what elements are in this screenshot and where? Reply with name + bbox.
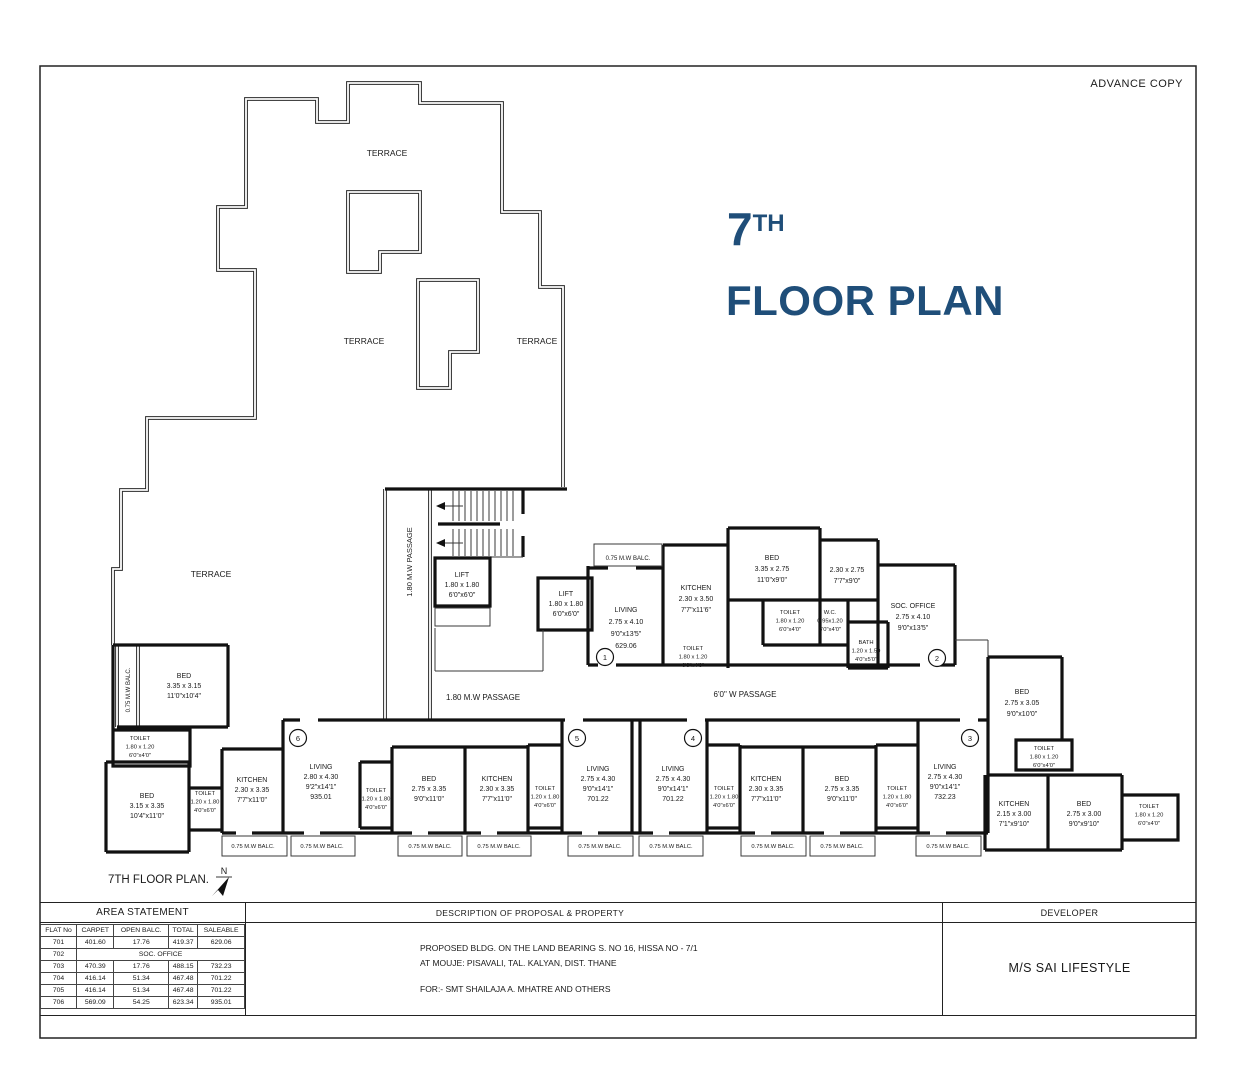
room-label-bed-705: BED xyxy=(422,776,436,783)
room-label-living-701: 629.06 xyxy=(615,643,637,650)
area-table-cell: 17.76 xyxy=(114,937,169,949)
area-table-cell: 467.48 xyxy=(169,973,198,985)
room-label-wc: 0.95x1.20 xyxy=(817,619,842,625)
room-label-toilet: 4'0"x6'0" xyxy=(194,808,216,814)
room-label-living-705: 2.75 x 4.30 xyxy=(581,776,616,783)
floor-plan-sheet: { "sheet": { "advance_copy": "ADVANCE CO… xyxy=(0,0,1234,1079)
sheet-border xyxy=(40,66,1196,1038)
room-label-toilet: 1.80 x 1.20 xyxy=(679,655,708,661)
area-table-cell: 705 xyxy=(41,985,77,997)
area-table-cell: 51.34 xyxy=(114,985,169,997)
room-label-bed-701: BED xyxy=(765,555,779,562)
area-statement-cell: FLAT NoCARPETOPEN BALC.TOTALSALEABLE 701… xyxy=(40,923,246,1016)
room-label-kitchen-704: KITCHEN xyxy=(751,776,782,783)
area-table-row: 702SOC. OFFICE xyxy=(41,949,245,961)
lift-label: LIFT xyxy=(559,591,574,598)
room-label-living-703: 9'0"x14'1" xyxy=(930,784,961,791)
unit-number: 4 xyxy=(691,734,695,743)
room-label-bed-706: 3.35 x 3.15 xyxy=(167,683,202,690)
room-label-kitchen-703: 7'1"x9'10" xyxy=(999,821,1030,828)
description-line: AT MOUJE: PISAVALI, TAL. KALYAN, DIST. T… xyxy=(420,956,942,971)
title-block-body: FLAT NoCARPETOPEN BALC.TOTALSALEABLE 701… xyxy=(40,923,1196,1016)
area-table-cell: 470.39 xyxy=(77,961,114,973)
stair-arrow-icon xyxy=(436,539,445,547)
room-label-kitchen-701: 2.30 x 3.50 xyxy=(679,596,714,603)
room-label-bed-703: BED xyxy=(1015,689,1029,696)
balcony-label: 0.75 M.W BALC. xyxy=(477,844,521,850)
room-label-soc-office: 2.75 x 4.10 xyxy=(896,614,931,621)
area-table-cell: 419.37 xyxy=(169,937,198,949)
room-label-wc: 3'0"x4'0" xyxy=(819,627,841,633)
flat-block-701-702 xyxy=(588,528,988,668)
balcony-label: 0.75 M.W BALC. xyxy=(820,844,864,850)
room-label-toilet: TOILET xyxy=(683,646,704,652)
room-label-kitchen-704: 7'7"x11'0" xyxy=(751,796,782,803)
room-label-toilet: 1.20 x 1.80 xyxy=(883,795,912,801)
room-label-living-706: 935.01 xyxy=(310,794,332,801)
room-label-bed-703: 2.75 x 3.05 xyxy=(1005,700,1040,707)
area-table-cell: 702 xyxy=(41,949,77,961)
area-table-cell: 54.25 xyxy=(114,997,169,1009)
balcony-label: 0.75 M.W BALC. xyxy=(578,844,622,850)
room-label-living-706: LIVING xyxy=(310,764,333,771)
area-table-cell: 416.14 xyxy=(77,985,114,997)
room-label-living-703: 732.23 xyxy=(934,794,956,801)
balcony-label: 0.75 M.W BALC. xyxy=(408,844,452,850)
lift-label: 6'0"x6'0" xyxy=(449,592,476,599)
terrace-label: TERRACE xyxy=(517,336,558,346)
room-label-bed-703b: 9'0"x9'10" xyxy=(1069,821,1100,828)
north-arrow-icon xyxy=(212,877,232,896)
room-label-living-706: 9'2"x14'1" xyxy=(306,784,337,791)
balcony-label: 0.75 M.W BALC. xyxy=(751,844,795,850)
room-label-bath: BATH xyxy=(858,640,873,646)
area-table-cell: 623.34 xyxy=(169,997,198,1009)
unit-number: 3 xyxy=(968,734,972,743)
room-label-toilet: 4'0"x6'0" xyxy=(886,803,908,809)
room-label-living-704: 9'0"x14'1" xyxy=(658,786,689,793)
room-label-toilet: 1.20 x 1.80 xyxy=(191,800,220,806)
room-label-kitchen-703: 2.15 x 3.00 xyxy=(997,811,1032,818)
stair-arrow-icon xyxy=(436,502,445,510)
balcony-label: 0.75 M.W BALC. xyxy=(300,844,344,850)
page-title: 7TH xyxy=(727,206,785,252)
room-label-kitchen-706: KITCHEN xyxy=(237,777,268,784)
area-statement-title: AREA STATEMENT xyxy=(40,903,246,922)
room-label-toilet: 4'0"x6'0" xyxy=(534,803,556,809)
room-label-toilet: 6'0"x4'0" xyxy=(129,753,151,759)
room-label-kitchen-701: 7'7"x11'6" xyxy=(681,607,712,614)
room-label-bed-705: 9'0"x11'0" xyxy=(414,796,445,803)
room-label-toilet: 4'0"x6'0" xyxy=(713,803,735,809)
room-label-bath: 4'0"x5'0" xyxy=(855,657,877,663)
area-col-header: CARPET xyxy=(77,925,114,937)
room-label-kitchen-705: 2.30 x 3.35 xyxy=(480,786,515,793)
room-label-kitchen-703: KITCHEN xyxy=(999,801,1030,808)
room-label-room-702: 7'7"x9'0" xyxy=(834,578,861,585)
room-label-kitchen-706: 2.30 x 3.35 xyxy=(235,787,270,794)
area-table-cell: 732.23 xyxy=(198,961,245,973)
room-label-living-703: 2.75 x 4.30 xyxy=(928,774,963,781)
area-table-cell: 401.60 xyxy=(77,937,114,949)
terrace-outline xyxy=(113,83,563,727)
unit-markers: 123456 xyxy=(290,649,979,747)
description-cell: PROPOSED BLDG. ON THE LAND BEARING S. NO… xyxy=(246,923,943,1016)
room-label-toilet: 4'0"x6'0" xyxy=(365,805,387,811)
lift-label: 6'0"x6'0" xyxy=(553,611,580,618)
room-label-living-701: 2.75 x 4.10 xyxy=(609,619,644,626)
room-label-bed-701: 11'0"x9'0" xyxy=(757,577,788,584)
room-label-living-703: LIVING xyxy=(934,764,957,771)
area-col-header: SALEABLE xyxy=(198,925,245,937)
room-label-bed-703b: 2.75 x 3.00 xyxy=(1067,811,1102,818)
room-label-toilet: 6'0"x4'0" xyxy=(1138,821,1160,827)
room-label-toilet: TOILET xyxy=(366,788,387,794)
room-label-living-701: LIVING xyxy=(615,607,638,614)
room-label-toilet: 1.80 x 1.20 xyxy=(126,745,155,751)
title-floor-number: 7 xyxy=(727,203,753,255)
room-label-bed-703b: BED xyxy=(1077,801,1091,808)
room-label-living-701: 9'0"x13'5" xyxy=(611,631,642,638)
room-label-toilet: TOILET xyxy=(887,786,908,792)
room-label-bed-706: BED xyxy=(177,673,191,680)
area-table-cell: 706 xyxy=(41,997,77,1009)
balcony-label: 0.75 M.W BALC. xyxy=(126,667,132,712)
room-label-bed-701: 3.35 x 2.75 xyxy=(755,566,790,573)
flat-wing-706 xyxy=(106,645,228,852)
description-title: DESCRIPTION OF PROPOSAL & PROPERTY xyxy=(246,903,943,922)
room-label-living-704: LIVING xyxy=(662,766,685,773)
room-labels: TERRACETERRACETERRACETERRACE1.80 M.W PAS… xyxy=(126,148,1164,876)
area-table-cell: 569.09 xyxy=(77,997,114,1009)
room-label-toilet: 1.20 x 1.80 xyxy=(710,795,739,801)
room-label-living-705: 9'0"x14'1" xyxy=(583,786,614,793)
area-table-cell: 17.76 xyxy=(114,961,169,973)
room-label-toilet: TOILET xyxy=(130,736,151,742)
unit-number: 1 xyxy=(603,653,607,662)
room-label-toilet: TOILET xyxy=(535,786,556,792)
area-table-cell: 701.22 xyxy=(198,985,245,997)
unit-number: 2 xyxy=(935,654,939,663)
advance-copy-stamp: ADVANCE COPY xyxy=(1090,78,1183,90)
terrace-label: TERRACE xyxy=(367,148,408,158)
developer-title: DEVELOPER xyxy=(943,903,1196,922)
room-label-kitchen-705: 7'7"x11'0" xyxy=(482,796,513,803)
balcony-label: 0.75 M.W BALC. xyxy=(649,844,693,850)
description-line: PROPOSED BLDG. ON THE LAND BEARING S. NO… xyxy=(420,941,942,956)
description-line: FOR:- SMT SHAILAJA A. MHATRE AND OTHERS xyxy=(420,982,942,997)
room-label-living-705: 701.22 xyxy=(587,796,609,803)
room-label-living-704: 2.75 x 4.30 xyxy=(656,776,691,783)
room-label-toilet: TOILET xyxy=(195,791,216,797)
balcony-label: 0.75 M.W BALC. xyxy=(606,556,651,562)
room-label-living-706: 2.80 x 4.30 xyxy=(304,774,339,781)
room-label-bed-704: 9'0"x11'0" xyxy=(827,796,858,803)
room-label-bed-706b: BED xyxy=(140,793,154,800)
balcony-label: 0.75 M.W BALC. xyxy=(926,844,970,850)
room-label-soc-office: 9'0"x13'5" xyxy=(898,625,929,632)
room-label-toilet: 1.80 x 1.20 xyxy=(1030,755,1059,761)
area-table-row: 705416.1451.34467.48701.22 xyxy=(41,985,245,997)
room-label-toilet: TOILET xyxy=(714,786,735,792)
description-text: PROPOSED BLDG. ON THE LAND BEARING S. NO… xyxy=(246,923,942,997)
room-label-bed-706b: 3.15 x 3.35 xyxy=(130,803,165,810)
room-label-soc-office: SOC. OFFICE xyxy=(891,603,936,610)
room-label-bed-704: BED xyxy=(835,776,849,783)
area-table-cell: 416.14 xyxy=(77,973,114,985)
room-label-wc: W.C. xyxy=(824,610,837,616)
room-label-bed-705: 2.75 x 3.35 xyxy=(412,786,447,793)
room-label-toilet: 6'0"x4'0" xyxy=(779,627,801,633)
room-label-bed-706: 11'0"x10'4" xyxy=(167,693,201,700)
room-label-toilet: TOILET xyxy=(780,610,801,616)
area-table-cell: 629.06 xyxy=(198,937,245,949)
room-label-toilet: 1.80 x 1.20 xyxy=(776,619,805,625)
terrace-label: TERRACE xyxy=(191,569,232,579)
page-title-rest: FLOOR PLAN xyxy=(726,277,1004,325)
unit-number: 5 xyxy=(575,734,579,743)
passage-label: 6'0" W PASSAGE xyxy=(714,690,777,699)
lift-label: LIFT xyxy=(455,572,470,579)
area-col-header: OPEN BALC. xyxy=(114,925,169,937)
area-table-cell: 488.15 xyxy=(169,961,198,973)
room-label-room-702: 2.30 x 2.75 xyxy=(830,567,865,574)
area-table-cell: SOC. OFFICE xyxy=(77,949,245,961)
area-table-row: 706569.0954.25623.34935.01 xyxy=(41,997,245,1009)
developer-name: M/S SAI LIFESTYLE xyxy=(943,961,1196,975)
area-table-cell: 701.22 xyxy=(198,973,245,985)
room-label-bath: 1.20 x 1.50 xyxy=(852,649,881,655)
room-label-kitchen-704: 2.30 x 3.35 xyxy=(749,786,784,793)
area-col-header: FLAT No xyxy=(41,925,77,937)
title-block-header: AREA STATEMENT DESCRIPTION OF PROPOSAL &… xyxy=(40,903,1196,923)
area-statement-table: FLAT NoCARPETOPEN BALC.TOTALSALEABLE 701… xyxy=(40,924,245,1009)
room-label-toilet: TOILET xyxy=(1034,746,1055,752)
room-label-toilet: TOILET xyxy=(1139,804,1160,810)
north-label: N xyxy=(221,866,228,876)
title-ordinal-suffix: TH xyxy=(753,210,785,237)
area-table-cell: 51.34 xyxy=(114,973,169,985)
area-table-row: 703470.3917.76488.15732.23 xyxy=(41,961,245,973)
terrace-label: TERRACE xyxy=(344,336,385,346)
lift-label: 1.80 x 1.80 xyxy=(445,582,480,589)
room-label-kitchen-701: KITCHEN xyxy=(681,585,712,592)
lift-label: 1.80 x 1.80 xyxy=(549,601,584,608)
room-label-toilet: 6'0"x4'0" xyxy=(1033,763,1055,769)
room-label-bed-704: 2.75 x 3.35 xyxy=(825,786,860,793)
area-table-cell: 701 xyxy=(41,937,77,949)
room-label-bed-703: 9'0"x10'0" xyxy=(1007,711,1038,718)
room-label-kitchen-705: KITCHEN xyxy=(482,776,513,783)
area-col-header: TOTAL xyxy=(169,925,198,937)
area-table-cell: 935.01 xyxy=(198,997,245,1009)
area-table-cell: 703 xyxy=(41,961,77,973)
room-label-kitchen-706: 7'7"x11'0" xyxy=(237,797,268,804)
unit-number: 6 xyxy=(296,734,300,743)
area-table-row: 701401.6017.76419.37629.06 xyxy=(41,937,245,949)
area-table-cell: 467.48 xyxy=(169,985,198,997)
room-label-toilet: 1.80 x 1.20 xyxy=(1135,813,1164,819)
area-table-cell: 704 xyxy=(41,973,77,985)
passage-label: 1.80 M.W PASSAGE xyxy=(405,527,414,596)
balcony-label: 0.75 M.W BALC. xyxy=(231,844,275,850)
developer-cell: M/S SAI LIFESTYLE xyxy=(943,923,1196,1016)
area-table-row: 704416.1451.34467.48701.22 xyxy=(41,973,245,985)
room-label-living-704: 701.22 xyxy=(662,796,684,803)
room-label-toilet: 1.20 x 1.80 xyxy=(362,797,391,803)
title-block: AREA STATEMENT DESCRIPTION OF PROPOSAL &… xyxy=(40,902,1196,1016)
room-label-bed-706b: 10'4"x11'0" xyxy=(130,813,164,820)
passage-label: 1.80 M.W PASSAGE xyxy=(446,693,520,702)
room-label-living-705: LIVING xyxy=(587,766,610,773)
room-label-toilet: 6'0"x4'0" xyxy=(682,663,704,669)
room-label-toilet: 1.20 x 1.80 xyxy=(531,795,560,801)
plan-caption: 7TH FLOOR PLAN. xyxy=(108,874,209,886)
